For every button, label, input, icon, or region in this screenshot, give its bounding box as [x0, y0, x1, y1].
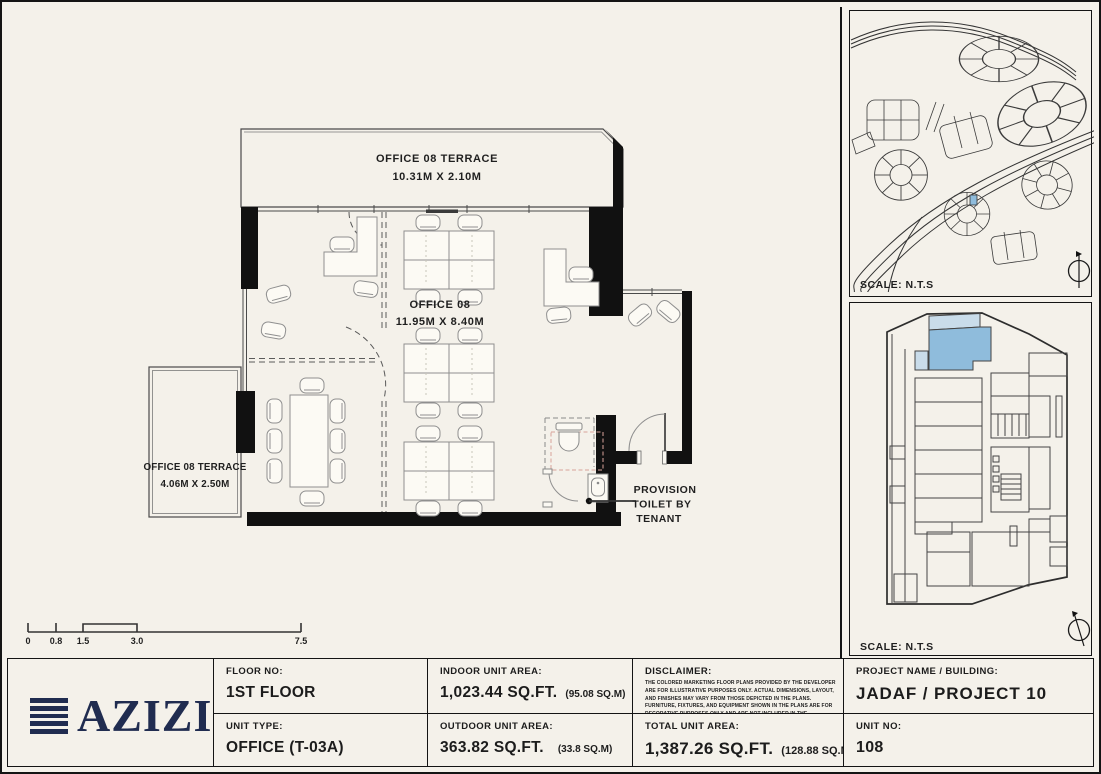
logo-text: AZIZI [77, 695, 212, 736]
conference-table [267, 378, 345, 506]
scale-bar: 0 0.8 1.5 3.0 7.5 [25, 623, 307, 646]
unit-no-cell: UNIT NO: 108 [843, 713, 1093, 767]
terrace-top-outline [241, 129, 623, 207]
key-plan: SCALE: N.T.S [850, 304, 1094, 656]
sliding-door [426, 210, 458, 214]
north-arrow-icon [1069, 611, 1090, 646]
terrace-top-label: OFFICE 08 TERRACE [376, 153, 498, 165]
unit-highlight [929, 327, 991, 370]
scale-tick-0: 0 [25, 636, 30, 646]
indoor-area-cell: INDOOR UNIT AREA: 1,023.44 SQ.FT.(95.08 … [427, 659, 632, 713]
left-window [243, 289, 247, 393]
manager-desk-left [324, 217, 379, 298]
unit-no-label: UNIT NO: [856, 721, 1085, 732]
floor-plan-area: PROVISION TOILET BY TENANT OFFICE 08 TER… [7, 7, 842, 659]
unit-type-label: UNIT TYPE: [226, 721, 419, 732]
wc-fixture [556, 423, 582, 451]
key-plan-rooms [890, 334, 1067, 604]
scale-tick-2: 1.5 [77, 636, 90, 646]
floor-no-cell: FLOOR NO: 1ST FLOOR [213, 659, 427, 713]
project-value: JADAF / PROJECT 10 [856, 684, 1085, 704]
toilet-note-line3: TENANT [636, 513, 682, 525]
lobby-chairs [626, 298, 682, 328]
site-map-scale-label: SCALE: N.T.S [860, 279, 934, 291]
disclaimer-cell: DISCLAIMER: THE COLORED MARKETING FLOOR … [632, 659, 843, 713]
office-dims: 11.95M X 8.40M [396, 316, 485, 328]
floor-no-label: FLOOR NO: [226, 666, 419, 677]
outdoor-area-cell: OUTDOOR UNIT AREA: 363.82 SQ.FT.(33.8 SQ… [427, 713, 632, 767]
floorplan-sheet: PROVISION TOILET BY TENANT OFFICE 08 TER… [0, 0, 1101, 774]
total-area-value: 1,387.26 SQ.FT. [645, 739, 773, 759]
floor-plan-drawing: PROVISION TOILET BY TENANT OFFICE 08 TER… [7, 7, 837, 657]
outdoor-area-label: OUTDOOR UNIT AREA: [440, 721, 624, 732]
site-map: SCALE: N.T.S [850, 12, 1094, 292]
indoor-area-label: INDOOR UNIT AREA: [440, 666, 624, 677]
roads [851, 22, 1094, 292]
block-grid-south [990, 230, 1037, 265]
unit-terrace2-highlight [915, 351, 928, 370]
north-arrow-icon [1069, 251, 1090, 288]
unit-type-cell: UNIT TYPE: OFFICE (T-03A) [213, 713, 427, 767]
toilet-note-line1: PROVISION [634, 484, 697, 496]
terrace-left-label: OFFICE 08 TERRACE [143, 462, 246, 473]
project-label: PROJECT NAME / BUILDING: [856, 666, 1085, 677]
block-grid-west [867, 100, 919, 140]
lobby-window [623, 288, 682, 296]
scale-tick-1: 0.8 [50, 636, 63, 646]
toilet-door-swing [549, 472, 578, 501]
floor-no-value: 1ST FLOOR [226, 684, 419, 702]
project-cell: PROJECT NAME / BUILDING: JADAF / PROJECT… [843, 659, 1093, 713]
terrace-top-dims: 10.31M X 2.10M [392, 171, 481, 183]
total-area-label: TOTAL UNIT AREA: [645, 721, 835, 732]
unit-no-value: 108 [856, 739, 1085, 757]
building-clusters [852, 36, 1094, 265]
total-area-cell: TOTAL UNIT AREA: 1,387.26 SQ.FT.(128.88 … [632, 713, 843, 767]
facade-window [258, 205, 589, 213]
indoor-area-sqm: (95.08 SQ.M) [565, 689, 625, 700]
sink-fixture [588, 474, 608, 502]
info-bar: AZIZI FLOOR NO: 1ST FLOOR INDOOR UNIT AR… [7, 658, 1094, 767]
side-panels: SCALE: N.T.S [846, 7, 1094, 659]
developer-logo: AZIZI [8, 659, 213, 766]
desk-clusters [404, 215, 494, 516]
office-label: OFFICE 08 [409, 299, 470, 311]
total-area-sqm: (128.88 SQ.M) [781, 745, 843, 757]
disclaimer-label: DISCLAIMER: [645, 666, 835, 677]
unit-type-value: OFFICE (T-03A) [226, 739, 419, 757]
outdoor-area-value: 363.82 SQ.FT. [440, 739, 544, 757]
terrace-left-outline [149, 367, 241, 517]
key-plan-scale-label: SCALE: N.T.S [860, 641, 934, 653]
site-map-panel: SCALE: N.T.S [849, 10, 1092, 297]
scale-tick-4: 7.5 [295, 636, 308, 646]
block-grid-mid [938, 112, 993, 160]
key-plan-panel: SCALE: N.T.S [849, 302, 1092, 656]
disclaimer-text: THE COLORED MARKETING FLOOR PLANS PROVID… [645, 680, 837, 713]
azizi-bars-icon [30, 698, 68, 734]
toilet-note-line2: TOILET BY [632, 499, 691, 511]
side-chairs-left [260, 284, 292, 340]
highlighted-plot [970, 195, 977, 205]
scale-tick-3: 3.0 [131, 636, 144, 646]
terrace-left-dims: 4.06M X 2.50M [160, 479, 229, 490]
outdoor-area-sqm: (33.8 SQ.M) [558, 744, 612, 755]
indoor-area-value: 1,023.44 SQ.FT. [440, 684, 557, 702]
